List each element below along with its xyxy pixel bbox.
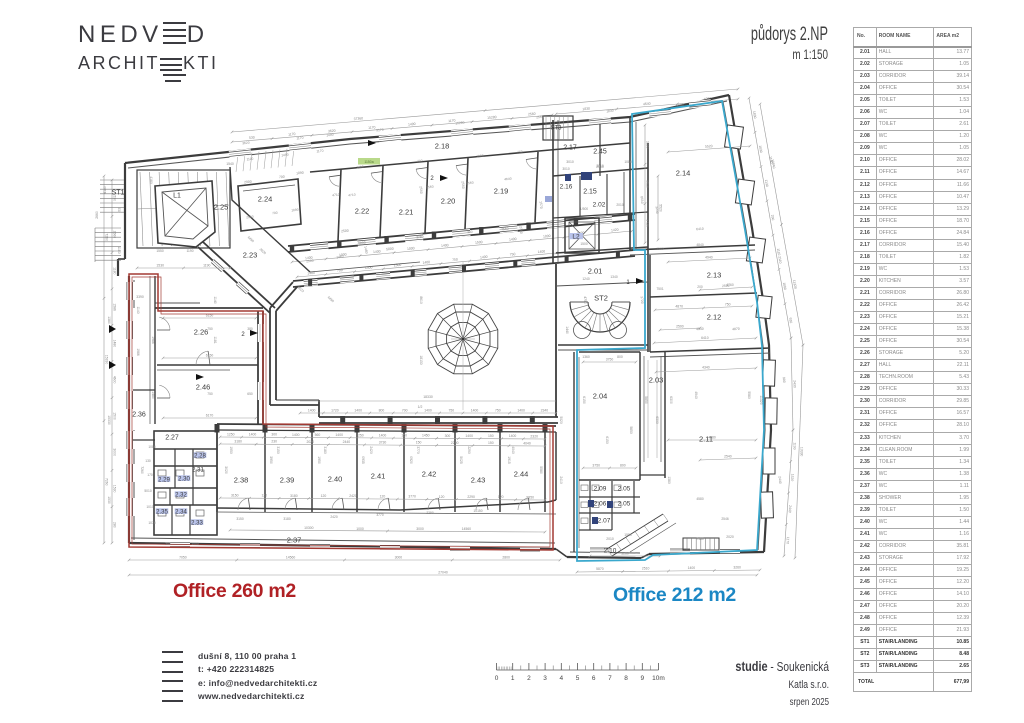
svg-text:2.24: 2.24 bbox=[258, 195, 273, 204]
svg-text:2500: 2500 bbox=[341, 229, 349, 234]
svg-text:1150a: 1150a bbox=[364, 160, 373, 164]
svg-text:15330: 15330 bbox=[107, 415, 111, 425]
svg-text:2440: 2440 bbox=[343, 440, 351, 444]
svg-text:700: 700 bbox=[417, 159, 423, 164]
svg-text:6300: 6300 bbox=[655, 416, 659, 424]
svg-text:1: 1 bbox=[511, 675, 515, 682]
svg-text:750: 750 bbox=[207, 327, 213, 331]
svg-text:5580: 5580 bbox=[539, 466, 543, 474]
svg-text:1000: 1000 bbox=[543, 234, 551, 239]
svg-text:2.30: 2.30 bbox=[178, 476, 190, 482]
svg-text:1550: 1550 bbox=[156, 249, 164, 253]
svg-text:1140: 1140 bbox=[213, 296, 217, 303]
svg-text:1170: 1170 bbox=[288, 132, 296, 137]
svg-text:2.15: 2.15 bbox=[583, 189, 597, 196]
svg-text:150: 150 bbox=[488, 441, 494, 445]
svg-text:2290: 2290 bbox=[467, 495, 475, 499]
svg-text:L1: L1 bbox=[173, 193, 181, 200]
svg-text:1060: 1060 bbox=[476, 154, 484, 159]
svg-text:2.46: 2.46 bbox=[196, 383, 211, 392]
svg-text:750: 750 bbox=[517, 150, 523, 155]
svg-text:2.03: 2.03 bbox=[649, 376, 664, 385]
svg-text:120: 120 bbox=[321, 494, 327, 498]
svg-text:1400: 1400 bbox=[441, 243, 449, 248]
svg-text:1540: 1540 bbox=[226, 162, 234, 166]
svg-text:1830: 1830 bbox=[752, 111, 757, 119]
svg-text:2546: 2546 bbox=[721, 517, 729, 521]
svg-text:11320: 11320 bbox=[759, 395, 763, 404]
svg-text:2410: 2410 bbox=[559, 476, 563, 484]
svg-text:3770: 3770 bbox=[408, 495, 416, 499]
svg-text:3230: 3230 bbox=[655, 206, 660, 214]
svg-text:2.07: 2.07 bbox=[598, 517, 611, 524]
svg-text:2.10: 2.10 bbox=[604, 547, 617, 554]
svg-text:3220: 3220 bbox=[646, 141, 650, 149]
svg-text:6410: 6410 bbox=[696, 227, 704, 231]
svg-text:750: 750 bbox=[452, 257, 458, 262]
svg-text:1915: 1915 bbox=[507, 456, 511, 464]
svg-text:1586: 1586 bbox=[113, 303, 117, 311]
svg-text:530: 530 bbox=[117, 207, 121, 213]
svg-text:5850: 5850 bbox=[629, 426, 633, 434]
svg-text:1380: 1380 bbox=[107, 316, 111, 324]
svg-text:1720: 1720 bbox=[331, 408, 339, 412]
svg-text:14560: 14560 bbox=[286, 555, 296, 559]
svg-text:300: 300 bbox=[271, 433, 277, 437]
svg-text:3180: 3180 bbox=[323, 446, 327, 454]
svg-text:15280: 15280 bbox=[455, 121, 465, 126]
svg-text:300: 300 bbox=[165, 542, 171, 546]
svg-text:290: 290 bbox=[770, 214, 775, 220]
svg-text:2.14: 2.14 bbox=[676, 169, 691, 178]
svg-text:6150: 6150 bbox=[605, 436, 609, 444]
svg-text:1400: 1400 bbox=[509, 237, 517, 242]
svg-text:5010: 5010 bbox=[144, 489, 152, 493]
svg-text:2290: 2290 bbox=[426, 511, 434, 515]
svg-text:2.04: 2.04 bbox=[593, 392, 608, 401]
svg-text:1170: 1170 bbox=[368, 125, 376, 130]
svg-text:1400: 1400 bbox=[354, 408, 362, 412]
svg-text:5800: 5800 bbox=[358, 241, 366, 246]
svg-text:530: 530 bbox=[249, 135, 255, 139]
svg-text:1080: 1080 bbox=[148, 445, 156, 449]
svg-text:8: 8 bbox=[624, 675, 628, 682]
svg-text:5850: 5850 bbox=[644, 396, 648, 404]
svg-text:1460: 1460 bbox=[363, 246, 368, 254]
svg-text:1400: 1400 bbox=[424, 408, 432, 412]
svg-text:800: 800 bbox=[617, 355, 623, 359]
svg-text:2420: 2420 bbox=[330, 515, 338, 519]
svg-text:7501: 7501 bbox=[656, 287, 664, 291]
svg-text:1490: 1490 bbox=[326, 133, 334, 138]
svg-text:2: 2 bbox=[430, 176, 434, 182]
svg-text:2.38: 2.38 bbox=[234, 476, 249, 485]
svg-text:4040: 4040 bbox=[523, 441, 531, 445]
svg-text:4: 4 bbox=[559, 675, 563, 682]
svg-text:2420: 2420 bbox=[369, 446, 373, 454]
svg-text:4940: 4940 bbox=[696, 327, 704, 331]
svg-text:1190: 1190 bbox=[186, 249, 193, 253]
svg-text:1550: 1550 bbox=[624, 533, 632, 537]
svg-text:2340: 2340 bbox=[541, 408, 549, 412]
svg-text:37360: 37360 bbox=[353, 116, 363, 121]
svg-text:2920: 2920 bbox=[259, 247, 267, 255]
svg-text:10150: 10150 bbox=[473, 509, 482, 513]
svg-text:1010: 1010 bbox=[146, 505, 154, 509]
svg-text:27040: 27040 bbox=[438, 570, 448, 574]
svg-text:1360: 1360 bbox=[582, 355, 590, 359]
svg-text:2320: 2320 bbox=[530, 434, 538, 438]
svg-text:1460: 1460 bbox=[336, 255, 344, 260]
svg-text:2500: 2500 bbox=[306, 259, 314, 264]
svg-text:4760: 4760 bbox=[726, 283, 734, 287]
svg-text:7180: 7180 bbox=[696, 537, 704, 541]
svg-text:2.44: 2.44 bbox=[514, 470, 529, 479]
svg-text:1250: 1250 bbox=[227, 433, 235, 437]
svg-text:750: 750 bbox=[207, 392, 213, 396]
svg-text:14b0: 14b0 bbox=[356, 165, 364, 170]
svg-text:L2: L2 bbox=[572, 233, 580, 240]
svg-text:1530: 1530 bbox=[156, 263, 164, 267]
svg-text:2420: 2420 bbox=[349, 494, 357, 498]
svg-text:1986: 1986 bbox=[136, 348, 140, 356]
svg-text:1400: 1400 bbox=[292, 433, 300, 437]
svg-text:2.40: 2.40 bbox=[328, 475, 343, 484]
svg-text:2.11: 2.11 bbox=[699, 435, 713, 444]
svg-text:1400: 1400 bbox=[465, 434, 473, 438]
svg-text:2430: 2430 bbox=[793, 380, 797, 388]
svg-text:1480: 1480 bbox=[113, 340, 117, 348]
svg-text:3750: 3750 bbox=[592, 463, 600, 467]
svg-text:3770: 3770 bbox=[376, 513, 384, 517]
svg-text:800: 800 bbox=[379, 408, 385, 412]
svg-text:2.23: 2.23 bbox=[243, 251, 258, 260]
svg-text:2020: 2020 bbox=[307, 440, 315, 444]
svg-text:6150: 6150 bbox=[582, 396, 586, 404]
svg-text:5170: 5170 bbox=[376, 128, 384, 133]
svg-text:1500: 1500 bbox=[113, 412, 117, 420]
svg-text:2560: 2560 bbox=[528, 112, 536, 117]
svg-text:2.25: 2.25 bbox=[214, 203, 229, 212]
svg-text:900: 900 bbox=[782, 377, 786, 383]
svg-text:1/500: 1/500 bbox=[580, 207, 588, 211]
svg-text:1400: 1400 bbox=[379, 433, 387, 437]
svg-text:1400: 1400 bbox=[517, 408, 525, 412]
svg-text:1000: 1000 bbox=[191, 542, 199, 546]
svg-text:ST2: ST2 bbox=[594, 294, 608, 303]
svg-text:700: 700 bbox=[279, 175, 285, 179]
svg-text:1520: 1520 bbox=[790, 474, 795, 482]
svg-text:2.42: 2.42 bbox=[422, 470, 437, 479]
svg-text:1240: 1240 bbox=[582, 277, 590, 281]
svg-text:4640: 4640 bbox=[504, 177, 512, 182]
svg-text:1080: 1080 bbox=[782, 282, 787, 290]
svg-text:1400: 1400 bbox=[688, 566, 696, 570]
svg-text:4710: 4710 bbox=[332, 193, 340, 198]
svg-text:1170: 1170 bbox=[296, 136, 304, 141]
svg-text:2010: 2010 bbox=[616, 203, 624, 207]
svg-text:3010: 3010 bbox=[566, 160, 574, 164]
svg-text:4640: 4640 bbox=[676, 103, 684, 108]
svg-text:4640: 4640 bbox=[643, 102, 651, 107]
svg-text:4450: 4450 bbox=[247, 235, 255, 243]
svg-text:4870: 4870 bbox=[732, 327, 740, 331]
svg-text:2660: 2660 bbox=[95, 211, 99, 219]
svg-text:800: 800 bbox=[620, 463, 626, 467]
svg-text:1180: 1180 bbox=[113, 267, 117, 274]
svg-text:3620: 3620 bbox=[242, 141, 250, 146]
svg-text:3180: 3180 bbox=[290, 494, 298, 498]
svg-text:4870: 4870 bbox=[675, 304, 683, 308]
svg-text:150: 150 bbox=[401, 434, 407, 438]
svg-text:5800: 5800 bbox=[386, 247, 394, 252]
svg-text:4580: 4580 bbox=[696, 497, 704, 501]
svg-text:1400: 1400 bbox=[471, 408, 479, 412]
svg-text:3000: 3000 bbox=[416, 527, 424, 531]
svg-text:1580: 1580 bbox=[656, 247, 664, 251]
svg-text:2.16: 2.16 bbox=[560, 183, 573, 190]
svg-text:8610: 8610 bbox=[419, 296, 423, 304]
svg-text:5: 5 bbox=[576, 675, 580, 682]
svg-text:3750: 3750 bbox=[606, 357, 614, 361]
svg-text:2.27: 2.27 bbox=[165, 435, 179, 442]
svg-text:2.01: 2.01 bbox=[588, 267, 603, 276]
svg-text:300: 300 bbox=[445, 434, 451, 438]
svg-text:1340: 1340 bbox=[610, 275, 618, 279]
svg-text:2020: 2020 bbox=[726, 535, 734, 539]
svg-text:2290: 2290 bbox=[451, 441, 459, 445]
svg-text:250: 250 bbox=[358, 433, 364, 437]
svg-text:2900: 2900 bbox=[244, 180, 252, 185]
svg-text:3390: 3390 bbox=[136, 295, 144, 299]
svg-text:1480: 1480 bbox=[151, 391, 155, 399]
svg-text:3150: 3150 bbox=[276, 446, 280, 454]
svg-text:5025: 5025 bbox=[459, 456, 463, 464]
svg-text:2.19: 2.19 bbox=[494, 187, 509, 196]
svg-text:3770: 3770 bbox=[416, 446, 420, 454]
svg-text:6410: 6410 bbox=[701, 336, 709, 340]
svg-text:2.32: 2.32 bbox=[175, 492, 187, 498]
svg-text:2: 2 bbox=[527, 675, 531, 682]
svg-text:2.41: 2.41 bbox=[371, 472, 386, 481]
svg-text:18130: 18130 bbox=[419, 355, 423, 364]
svg-text:1450: 1450 bbox=[422, 434, 430, 438]
svg-text:1180: 1180 bbox=[117, 246, 121, 253]
svg-text:4040: 4040 bbox=[511, 446, 515, 454]
svg-text:3780: 3780 bbox=[416, 235, 424, 240]
svg-text:120: 120 bbox=[439, 495, 445, 499]
svg-text:2.45: 2.45 bbox=[593, 149, 607, 156]
svg-text:700: 700 bbox=[272, 211, 278, 216]
svg-text:1530: 1530 bbox=[113, 485, 117, 493]
svg-text:1000: 1000 bbox=[356, 527, 364, 531]
svg-text:7260: 7260 bbox=[105, 478, 109, 486]
svg-text:4180: 4180 bbox=[149, 176, 153, 184]
svg-text:1830: 1830 bbox=[582, 107, 590, 112]
svg-text:1830: 1830 bbox=[606, 109, 614, 114]
svg-text:3260: 3260 bbox=[621, 551, 629, 555]
svg-text:1530: 1530 bbox=[107, 496, 111, 504]
svg-text:2.20: 2.20 bbox=[441, 197, 456, 206]
svg-text:2510: 2510 bbox=[642, 567, 650, 571]
svg-text:1181: 1181 bbox=[213, 336, 217, 343]
svg-text:8610: 8610 bbox=[646, 180, 650, 188]
svg-text:2.06: 2.06 bbox=[594, 500, 607, 507]
svg-text:2.13: 2.13 bbox=[707, 271, 722, 280]
svg-text:1400: 1400 bbox=[537, 249, 545, 254]
svg-text:7050: 7050 bbox=[179, 555, 187, 559]
svg-text:1030: 1030 bbox=[758, 145, 763, 153]
svg-text:3010: 3010 bbox=[562, 167, 570, 171]
svg-text:3: 3 bbox=[543, 675, 547, 682]
svg-text:2.22: 2.22 bbox=[355, 207, 370, 216]
svg-text:1490: 1490 bbox=[281, 153, 289, 158]
svg-text:1140: 1140 bbox=[136, 306, 140, 313]
svg-text:2.09: 2.09 bbox=[594, 485, 607, 492]
svg-text:7260: 7260 bbox=[140, 466, 144, 474]
svg-text:2900: 2900 bbox=[246, 215, 254, 220]
svg-text:5580: 5580 bbox=[747, 391, 751, 399]
svg-text:120: 120 bbox=[261, 494, 267, 498]
svg-text:1500: 1500 bbox=[475, 240, 483, 245]
svg-text:150: 150 bbox=[488, 434, 494, 438]
svg-text:1400: 1400 bbox=[422, 260, 430, 265]
svg-text:1400: 1400 bbox=[373, 249, 381, 254]
svg-text:1570: 1570 bbox=[539, 201, 544, 209]
svg-text:150: 150 bbox=[416, 441, 422, 445]
svg-text:4180: 4180 bbox=[103, 186, 107, 194]
svg-text:1100: 1100 bbox=[792, 442, 797, 450]
svg-text:1400: 1400 bbox=[509, 434, 517, 438]
svg-text:230: 230 bbox=[271, 440, 277, 444]
svg-text:120: 120 bbox=[498, 495, 504, 499]
svg-text:1950: 1950 bbox=[229, 446, 233, 454]
svg-text:920: 920 bbox=[788, 317, 793, 323]
svg-text:0: 0 bbox=[495, 675, 499, 682]
svg-text:14560: 14560 bbox=[462, 527, 472, 531]
svg-text:5020: 5020 bbox=[559, 416, 563, 424]
svg-text:750: 750 bbox=[725, 302, 731, 306]
svg-text:2.39: 2.39 bbox=[280, 476, 295, 485]
svg-text:2.29: 2.29 bbox=[158, 477, 170, 483]
svg-text:13330: 13330 bbox=[799, 447, 803, 457]
svg-text:2: 2 bbox=[241, 332, 245, 338]
svg-text:560: 560 bbox=[315, 433, 321, 437]
svg-text:1400: 1400 bbox=[249, 433, 257, 437]
svg-text:10300: 10300 bbox=[304, 526, 314, 530]
svg-text:1950: 1950 bbox=[317, 456, 321, 464]
svg-text:200: 200 bbox=[697, 285, 703, 289]
svg-text:2010: 2010 bbox=[606, 537, 614, 541]
svg-text:3260: 3260 bbox=[733, 566, 741, 570]
svg-text:1986: 1986 bbox=[151, 336, 155, 344]
svg-text:170: 170 bbox=[147, 473, 153, 477]
svg-text:4340: 4340 bbox=[702, 365, 710, 369]
svg-text:7: 7 bbox=[608, 675, 612, 682]
svg-text:120: 120 bbox=[380, 494, 386, 498]
svg-text:3000: 3000 bbox=[395, 555, 403, 559]
svg-text:6: 6 bbox=[592, 675, 596, 682]
svg-text:1380: 1380 bbox=[667, 476, 671, 484]
svg-text:8610: 8610 bbox=[640, 196, 645, 204]
svg-text:650: 650 bbox=[247, 392, 253, 396]
svg-text:2800: 2800 bbox=[502, 555, 510, 559]
svg-text:1400: 1400 bbox=[308, 408, 316, 412]
svg-text:3150: 3150 bbox=[236, 517, 244, 521]
svg-text:3150: 3150 bbox=[231, 494, 239, 498]
svg-text:1090: 1090 bbox=[296, 171, 304, 176]
svg-text:2.26: 2.26 bbox=[194, 328, 209, 337]
svg-text:15330: 15330 bbox=[105, 355, 109, 365]
svg-text:2440: 2440 bbox=[778, 476, 783, 484]
svg-text:15280: 15280 bbox=[487, 115, 497, 120]
svg-text:2.43: 2.43 bbox=[471, 476, 486, 485]
svg-text:4940: 4940 bbox=[705, 255, 713, 259]
svg-text:2360: 2360 bbox=[519, 226, 524, 234]
svg-text:2500: 2500 bbox=[676, 324, 684, 328]
svg-text:750: 750 bbox=[448, 408, 454, 412]
svg-text:0920: 0920 bbox=[409, 456, 413, 464]
svg-text:2.37: 2.37 bbox=[287, 536, 302, 545]
svg-text:4750: 4750 bbox=[583, 296, 587, 304]
svg-text:2.02: 2.02 bbox=[593, 201, 606, 208]
svg-text:2560: 2560 bbox=[466, 181, 474, 186]
svg-text:3180: 3180 bbox=[234, 440, 242, 444]
svg-text:2.05: 2.05 bbox=[618, 500, 631, 507]
svg-text:1440: 1440 bbox=[565, 326, 569, 334]
svg-text:3720: 3720 bbox=[646, 220, 650, 228]
svg-text:130: 130 bbox=[145, 459, 151, 463]
svg-text:3730: 3730 bbox=[379, 440, 387, 444]
svg-text:2540: 2540 bbox=[724, 454, 732, 458]
svg-text:2560: 2560 bbox=[461, 181, 466, 189]
svg-text:4450: 4450 bbox=[327, 295, 335, 303]
svg-text:3720: 3720 bbox=[640, 296, 645, 304]
svg-text:5520: 5520 bbox=[705, 144, 713, 149]
svg-text:2560: 2560 bbox=[426, 185, 434, 190]
svg-text:2.12: 2.12 bbox=[707, 313, 722, 322]
svg-text:0935: 0935 bbox=[361, 456, 365, 464]
svg-text:2.31: 2.31 bbox=[192, 467, 204, 473]
svg-text:18330: 18330 bbox=[423, 395, 433, 399]
svg-text:3000: 3000 bbox=[113, 448, 117, 456]
svg-text:1080: 1080 bbox=[624, 160, 632, 164]
svg-text:6300: 6300 bbox=[669, 396, 673, 404]
svg-text:1170: 1170 bbox=[785, 537, 790, 545]
svg-text:2560: 2560 bbox=[419, 186, 424, 194]
svg-text:1170: 1170 bbox=[316, 149, 324, 154]
svg-text:750: 750 bbox=[510, 252, 516, 257]
svg-text:2.35: 2.35 bbox=[156, 509, 168, 515]
svg-text:1420: 1420 bbox=[611, 228, 619, 233]
svg-text:2.34: 2.34 bbox=[175, 509, 187, 515]
svg-text:3180: 3180 bbox=[283, 517, 291, 521]
svg-text:ST1: ST1 bbox=[112, 190, 125, 197]
svg-text:2.18: 2.18 bbox=[435, 142, 450, 151]
svg-text:2.05: 2.05 bbox=[618, 485, 631, 492]
svg-text:1490: 1490 bbox=[408, 122, 416, 127]
svg-text:4940: 4940 bbox=[694, 391, 698, 399]
svg-text:2440: 2440 bbox=[788, 505, 793, 513]
svg-text:280: 280 bbox=[113, 522, 117, 528]
svg-text:1110: 1110 bbox=[776, 248, 781, 256]
svg-text:2.21: 2.21 bbox=[399, 208, 414, 217]
svg-text:4840: 4840 bbox=[696, 243, 704, 247]
svg-text:1090: 1090 bbox=[291, 208, 299, 213]
svg-text:1130: 1130 bbox=[764, 179, 769, 187]
svg-text:1400: 1400 bbox=[335, 433, 343, 437]
svg-text:7560: 7560 bbox=[501, 227, 509, 232]
